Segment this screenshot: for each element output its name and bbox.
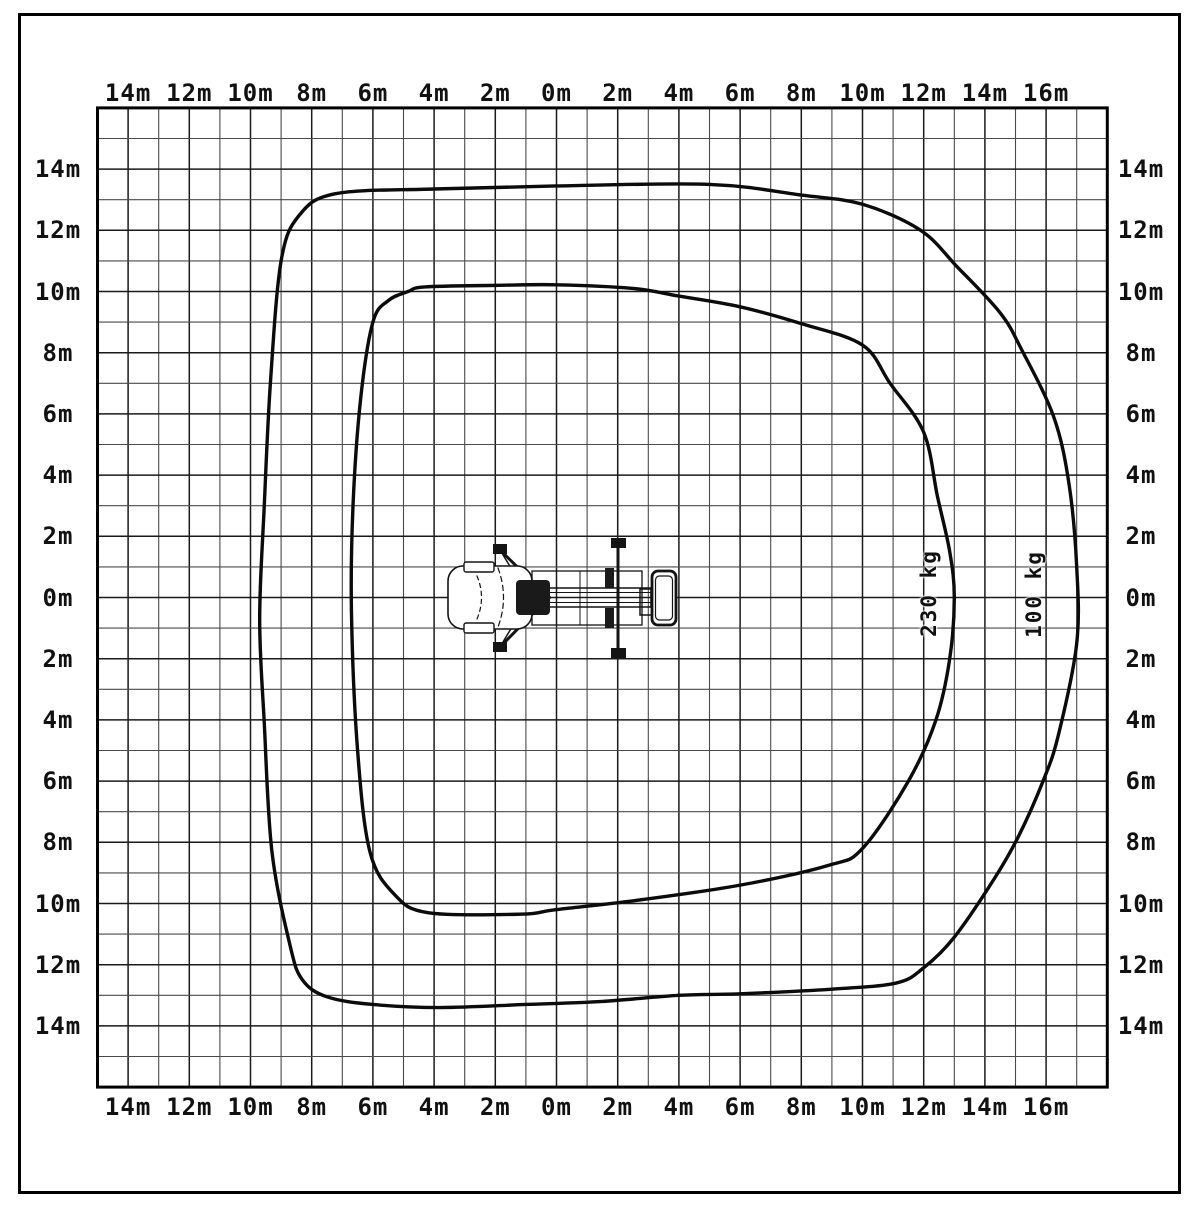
axis-tick-label: 4m: [1126, 461, 1157, 489]
axis-tick-label: 10m: [227, 79, 273, 107]
axis-tick-label: 12m: [166, 79, 212, 107]
axis-tick-label: 2m: [602, 1093, 633, 1121]
axis-tick-label: 16m: [1023, 79, 1069, 107]
axis-tick-label: 6m: [43, 767, 74, 795]
axis-tick-label: 2m: [43, 522, 74, 550]
axis-tick-label: 0m: [541, 1093, 572, 1121]
axis-tick-label: 6m: [357, 79, 388, 107]
axis-tick-label: 12m: [1118, 216, 1164, 244]
diagram-canvas: [0, 0, 1200, 1216]
axis-tick-label: 16m: [1023, 1093, 1069, 1121]
axis-tick-label: 14m: [962, 1093, 1008, 1121]
inner-curve-capacity-label: 230 kg: [917, 549, 941, 637]
axis-tick-label: 0m: [1126, 584, 1157, 612]
axis-tick-label: 4m: [663, 1093, 694, 1121]
axis-tick-label: 2m: [43, 645, 74, 673]
axis-tick-label: 6m: [43, 400, 74, 428]
axis-tick-label: 4m: [43, 706, 74, 734]
axis-tick-label: 14m: [1118, 1012, 1164, 1040]
axis-tick-label: 2m: [602, 79, 633, 107]
axis-tick-label: 10m: [1118, 278, 1164, 306]
axis-tick-label: 6m: [725, 1093, 756, 1121]
axis-tick-label: 8m: [296, 79, 327, 107]
axis-tick-label: 8m: [786, 79, 817, 107]
axis-tick-label: 8m: [1126, 828, 1157, 856]
axis-tick-label: 0m: [541, 79, 572, 107]
axis-tick-label: 4m: [663, 79, 694, 107]
axis-tick-label: 6m: [1126, 400, 1157, 428]
axis-tick-label: 6m: [725, 79, 756, 107]
axis-tick-label: 14m: [1118, 155, 1164, 183]
axis-tick-label: 12m: [1118, 951, 1164, 979]
axis-tick-label: 14m: [105, 1093, 151, 1121]
outer-curve-capacity-label: 100 kg: [1022, 550, 1046, 638]
axis-tick-label: 8m: [43, 339, 74, 367]
axis-tick-label: 6m: [1126, 767, 1157, 795]
axis-tick-label: 0m: [43, 584, 74, 612]
axis-tick-label: 4m: [1126, 706, 1157, 734]
axis-tick-label: 8m: [43, 828, 74, 856]
axis-tick-label: 8m: [786, 1093, 817, 1121]
axis-tick-label: 2m: [1126, 645, 1157, 673]
axis-tick-label: 8m: [1126, 339, 1157, 367]
axis-tick-label: 12m: [35, 216, 81, 244]
axis-tick-label: 10m: [227, 1093, 273, 1121]
axis-tick-label: 10m: [35, 890, 81, 918]
axis-tick-label: 14m: [35, 155, 81, 183]
axis-tick-label: 10m: [839, 79, 885, 107]
axis-tick-label: 10m: [35, 278, 81, 306]
axis-tick-label: 4m: [43, 461, 74, 489]
axis-tick-label: 8m: [296, 1093, 327, 1121]
axis-tick-label: 12m: [35, 951, 81, 979]
axis-tick-label: 14m: [962, 79, 1008, 107]
axis-tick-label: 14m: [105, 79, 151, 107]
axis-tick-label: 2m: [480, 1093, 511, 1121]
axis-tick-label: 12m: [901, 1093, 947, 1121]
axis-tick-label: 6m: [357, 1093, 388, 1121]
turret: [516, 580, 550, 615]
axis-tick-label: 2m: [1126, 522, 1157, 550]
axis-tick-label: 10m: [1118, 890, 1164, 918]
axis-tick-label: 14m: [35, 1012, 81, 1040]
axis-tick-label: 12m: [166, 1093, 212, 1121]
axis-tick-label: 4m: [419, 79, 450, 107]
working-range-diagram: 14m12m10m8m6m4m2m0m2m4m6m8m10m12m14m16m …: [0, 0, 1200, 1216]
axis-tick-label: 10m: [839, 1093, 885, 1121]
axis-tick-label: 2m: [480, 79, 511, 107]
axis-tick-label: 4m: [419, 1093, 450, 1121]
axis-tick-label: 12m: [901, 79, 947, 107]
